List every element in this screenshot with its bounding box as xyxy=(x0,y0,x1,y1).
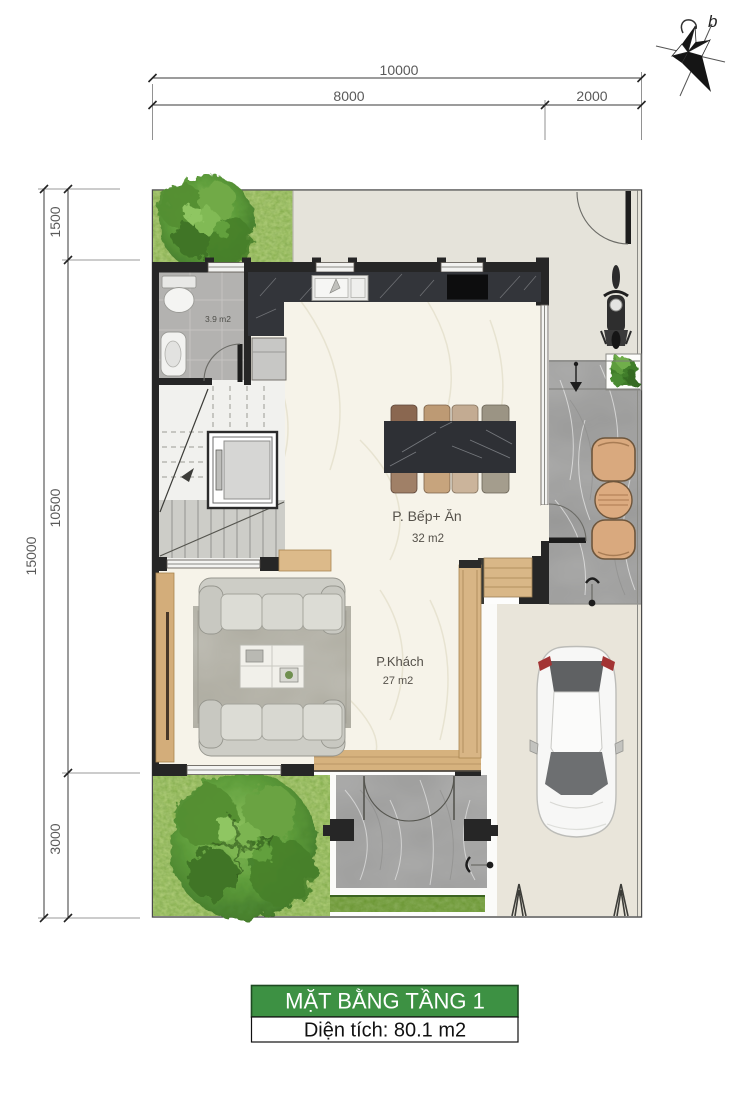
svg-text:32 m2: 32 m2 xyxy=(412,533,444,545)
svg-text:15000: 15000 xyxy=(23,536,39,575)
svg-text:Diện tích: 80.1 m2: Diện tích: 80.1 m2 xyxy=(304,1020,466,1042)
svg-text:MẶT BẰNG TẦNG 1: MẶT BẰNG TẦNG 1 xyxy=(285,989,485,1014)
svg-text:10000: 10000 xyxy=(380,62,419,78)
svg-text:3.9 m2: 3.9 m2 xyxy=(205,314,231,324)
svg-text:2000: 2000 xyxy=(576,88,607,104)
svg-text:b: b xyxy=(708,12,717,31)
svg-text:1500: 1500 xyxy=(47,206,63,237)
svg-text:P. Bếp+ Ăn: P. Bếp+ Ăn xyxy=(392,508,461,524)
svg-text:3000: 3000 xyxy=(47,823,63,854)
svg-text:8000: 8000 xyxy=(333,88,364,104)
svg-text:10500: 10500 xyxy=(47,488,63,527)
svg-text:P.Khách: P.Khách xyxy=(376,654,423,669)
svg-text:27 m2: 27 m2 xyxy=(383,675,414,687)
